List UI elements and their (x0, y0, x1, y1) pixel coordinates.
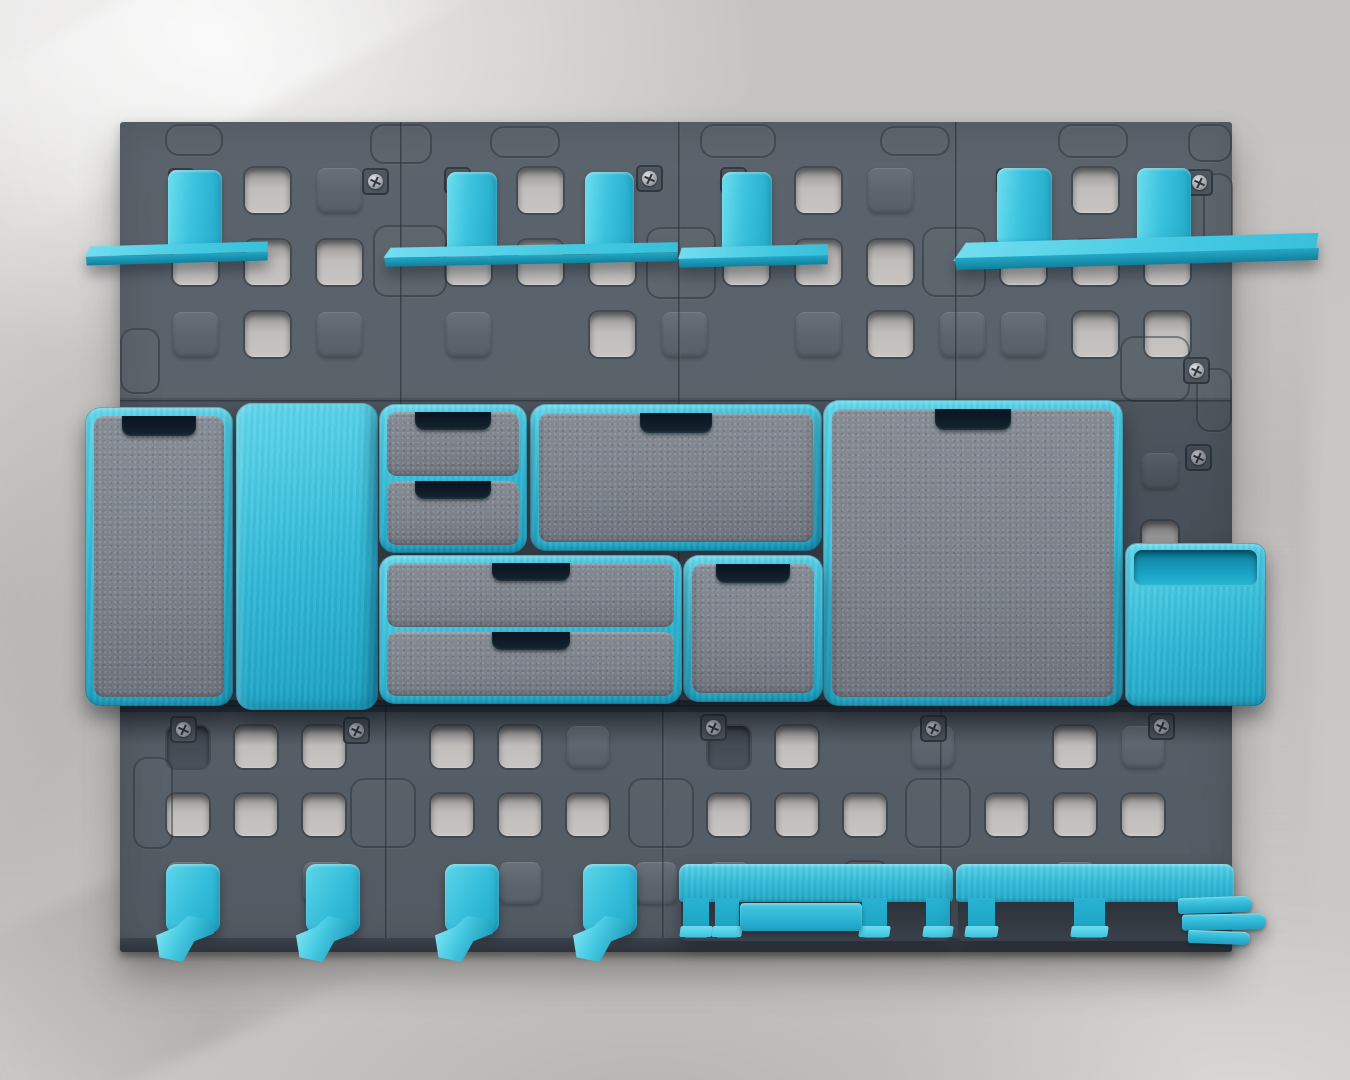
tool-rail (679, 864, 953, 945)
box-handle-notch (640, 413, 712, 433)
pegboard-hole (1122, 794, 1164, 836)
pegboard-hole (796, 168, 841, 213)
drawer-unit (379, 404, 527, 553)
panel-connector-relief (700, 124, 776, 158)
panel-connector-relief (905, 778, 971, 848)
panel-connector-relief (133, 757, 173, 849)
drawer-unit (379, 555, 682, 704)
pegboard-bump (173, 312, 218, 357)
drawer-front (387, 481, 519, 545)
closed-box-cyan (236, 403, 378, 710)
pegboard-hole (499, 726, 541, 768)
screw-mount (1183, 357, 1210, 384)
shelf-bracket (722, 172, 772, 250)
drawer-handle-notch (415, 481, 491, 499)
pegboard-hole (167, 794, 209, 836)
rail-bar (679, 864, 953, 902)
drawer-front (387, 563, 674, 627)
open-bin (1125, 543, 1266, 706)
pegboard-bump (499, 862, 541, 904)
shelf-plate (678, 244, 828, 268)
pegboard-hole (844, 794, 886, 836)
storage-box (683, 555, 823, 702)
screw-icon (706, 720, 721, 735)
rail-finger (1182, 913, 1266, 930)
panel-connector-relief (880, 126, 950, 156)
pegboard-hole (567, 794, 609, 836)
screw-mount (1185, 444, 1212, 471)
screw-mount (362, 168, 389, 195)
screw-icon (1192, 175, 1207, 190)
pegboard-bump (317, 312, 362, 357)
pegboard-hole (431, 794, 473, 836)
rail-prong (715, 898, 739, 938)
pegboard-bump (868, 168, 913, 213)
panel-connector-relief (490, 126, 560, 158)
pegboard-hole (590, 312, 635, 357)
screw-icon (349, 723, 364, 738)
pegboard-hole (868, 240, 913, 285)
pegboard-bump (940, 312, 985, 357)
panel-seam (385, 705, 388, 938)
pegboard-bump (662, 312, 707, 357)
screw-icon (176, 722, 191, 737)
pegboard-hole (303, 726, 345, 768)
screw-icon (1189, 363, 1204, 378)
rail-prong (683, 898, 709, 938)
pegboard-bump (1001, 312, 1046, 357)
pegboard-bump (635, 862, 677, 904)
screw-icon (926, 721, 941, 736)
rail-prong (926, 898, 950, 938)
screw-icon (368, 174, 383, 189)
shelf-bracket (997, 168, 1052, 242)
pegboard-hole (776, 794, 818, 836)
rail-prong (862, 898, 887, 938)
tool-rail (956, 864, 1234, 945)
pegboard-hole (776, 726, 818, 768)
screw-mount (700, 714, 727, 741)
screw-icon (642, 171, 657, 186)
drawer-handle-notch (415, 412, 491, 430)
pegboard-organizer-photo (0, 0, 1350, 1080)
screw-mount (1148, 713, 1175, 740)
pegboard-hole (868, 312, 913, 357)
rail-bar (956, 864, 1234, 902)
rail-prong (968, 898, 995, 938)
storage-box (530, 404, 822, 551)
panel-connector-relief (1058, 124, 1128, 158)
pegboard-hole (1054, 726, 1096, 768)
drawer-handle-notch (492, 632, 570, 650)
pegboard-bump (446, 312, 491, 357)
pegboard-hole (431, 726, 473, 768)
storage-box (85, 407, 233, 706)
drawer-handle-notch (492, 563, 570, 581)
shelf-bracket (168, 170, 222, 248)
pegboard-hole (245, 168, 290, 213)
pegboard-bump (317, 168, 362, 213)
screw-mount (170, 716, 197, 743)
pegboard-hole (235, 726, 277, 768)
box-handle-notch (716, 564, 790, 583)
pegboard-hole (1073, 168, 1118, 213)
panel-connector-relief (628, 778, 694, 848)
pegboard-hole (245, 312, 290, 357)
shelf-bracket (1137, 168, 1191, 242)
pegboard-hole (317, 240, 362, 285)
pegboard-hole (1054, 794, 1096, 836)
box-handle-notch (122, 416, 196, 436)
screw-mount (343, 717, 370, 744)
box-front-lid (539, 413, 813, 542)
pegboard-bump (567, 726, 609, 768)
pegboard-hole (708, 794, 750, 836)
panel-connector-relief (165, 124, 223, 156)
pegboard-hole (235, 794, 277, 836)
pegboard-hole (303, 794, 345, 836)
pegboard-hole (518, 168, 563, 213)
pegboard-hole (499, 794, 541, 836)
screw-icon (1154, 719, 1169, 734)
pegboard-hole (986, 794, 1028, 836)
screw-mount (920, 715, 947, 742)
panel-seam (662, 705, 665, 938)
screw-icon (1191, 450, 1206, 465)
panel-connector-relief (120, 328, 160, 394)
shelf-bracket (585, 172, 634, 249)
screw-mount (636, 165, 663, 192)
box-front-lid (832, 409, 1114, 697)
drawer-front (387, 412, 519, 476)
pegboard-hole (1073, 312, 1118, 357)
drawer-front (387, 632, 674, 696)
box-front-lid (692, 564, 814, 693)
panel-connector-relief (1188, 124, 1232, 162)
pegboard-bump (796, 312, 841, 357)
panel-connector-relief (1120, 336, 1190, 402)
box-front-lid (94, 416, 224, 697)
rail-finger (1188, 930, 1250, 945)
panel-connector-relief (350, 778, 416, 848)
rail-slat (740, 903, 862, 931)
pegboard-bump (1142, 453, 1178, 489)
storage-box (823, 400, 1123, 706)
shelf-bracket (447, 172, 497, 249)
rail-prong (1074, 898, 1105, 938)
box-handle-notch (935, 409, 1011, 430)
bin-opening (1134, 550, 1257, 586)
rail-finger (1178, 896, 1253, 915)
